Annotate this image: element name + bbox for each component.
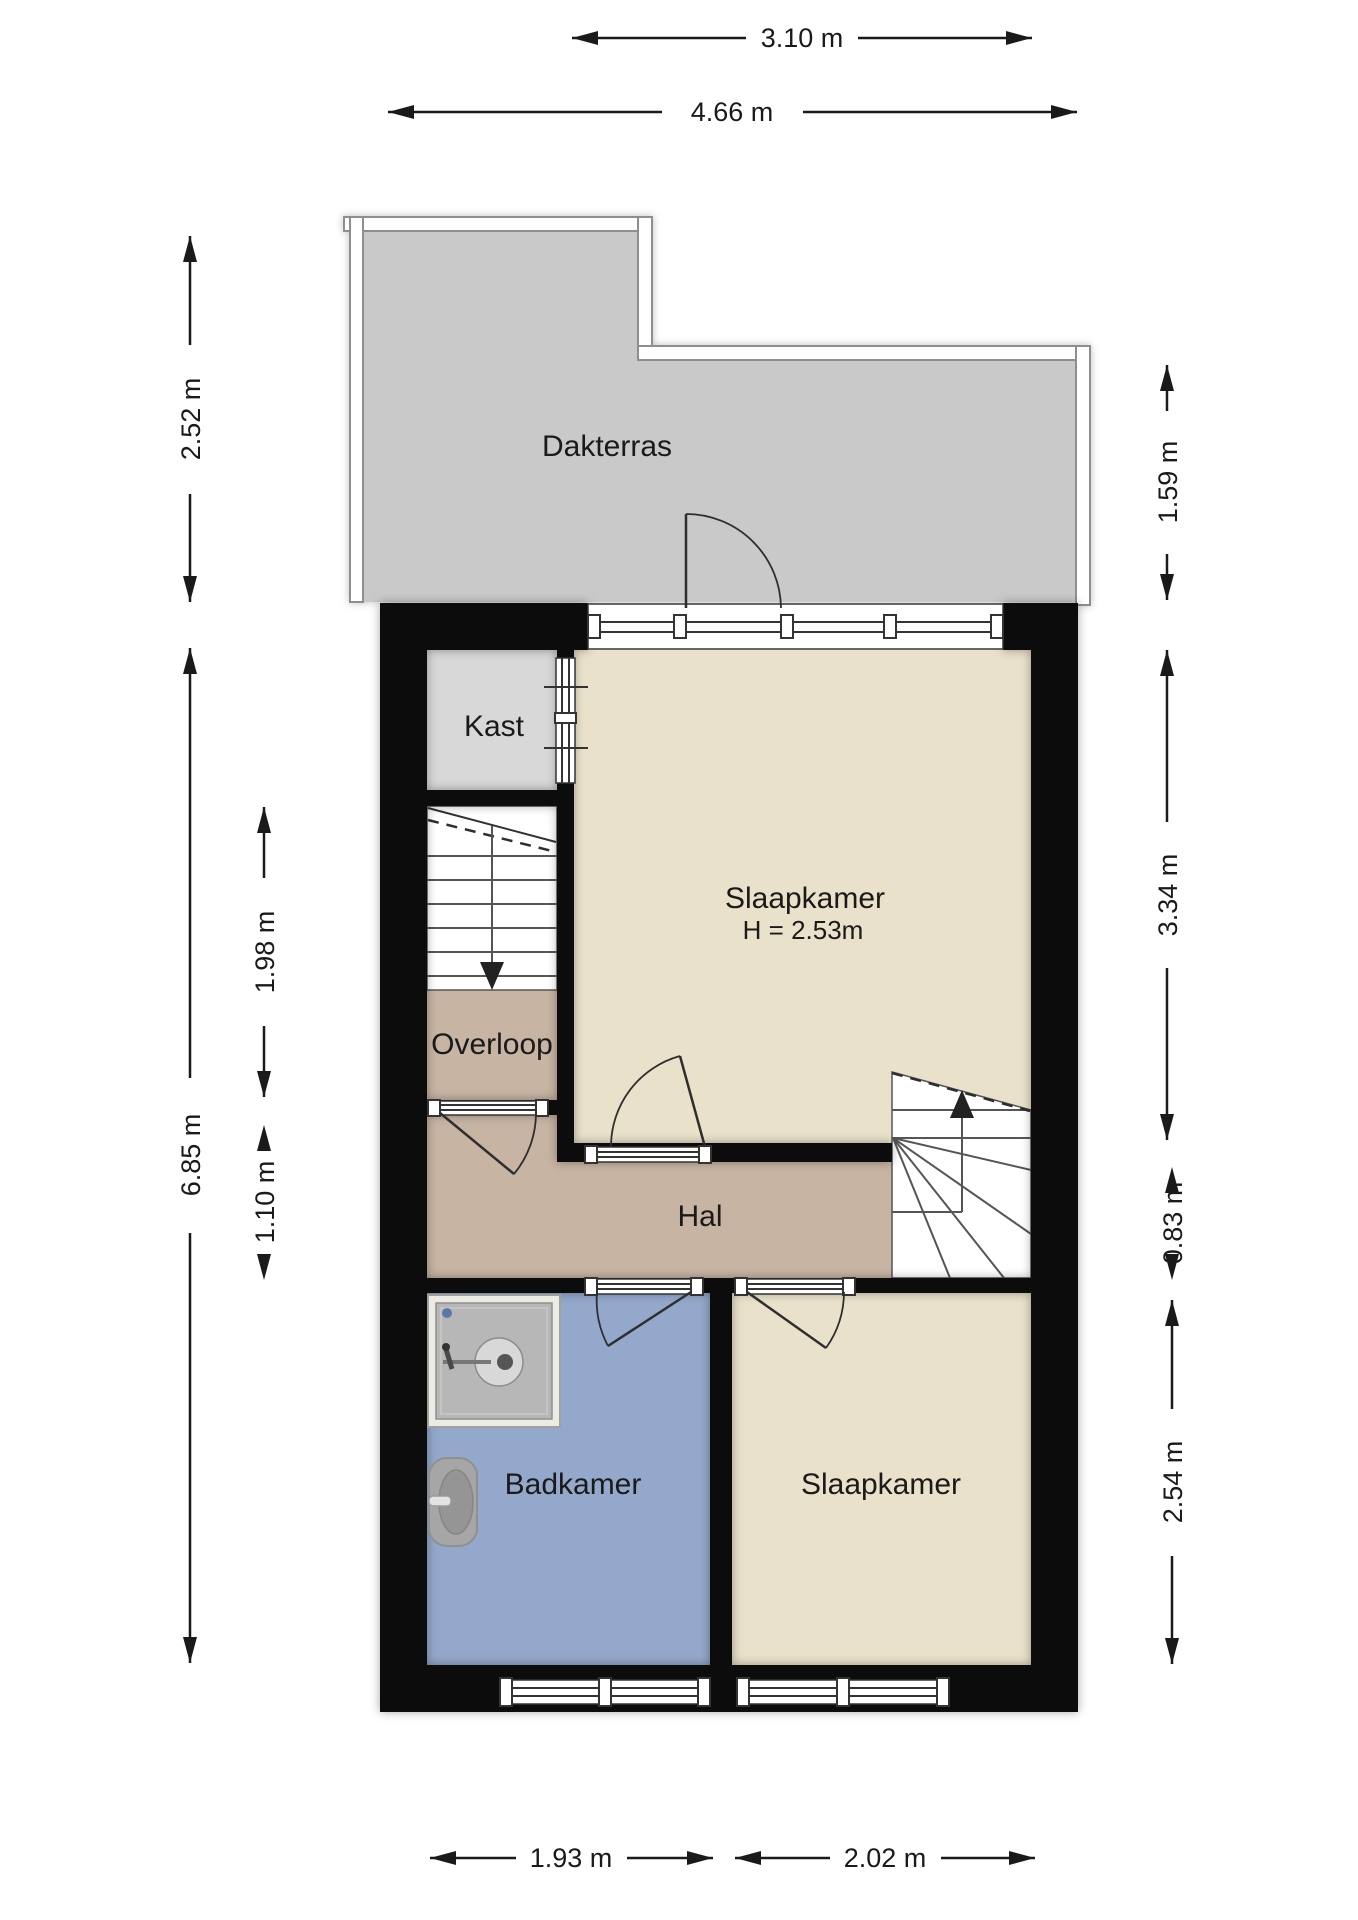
window-top-band [588,604,1003,649]
room-label-slaapkamer-1: Slaapkamer [725,882,885,915]
room-label-badkamer: Badkamer [505,1468,642,1501]
dim-label-159: 1.59 m [1153,441,1183,524]
wall-top-left [380,603,588,650]
window-badkamer [500,1678,710,1706]
shower-icon [428,1295,560,1427]
room-label-kast: Kast [464,710,525,743]
room-label-hal: Hal [677,1200,722,1233]
wall-right-outer [1031,603,1078,1712]
terrace-wall-left [350,217,363,602]
dim-label-254: 2.54 m [1158,1441,1188,1524]
terrace-wall-right [1076,346,1090,605]
room-label-slaapkamer-2: Slaapkamer [801,1468,961,1501]
dakterras-floor [363,231,1076,602]
dim-label-083: 0.83 m [1158,1182,1188,1265]
toilet-icon [429,1458,477,1546]
window-slaapkamer-2 [737,1678,949,1706]
room-dakterras [344,217,1090,605]
dim-label-334: 3.34 m [1153,854,1183,937]
wall-top-right [1003,603,1078,650]
floorplan-canvas: Dakterras Kast Slaapkamer H = 2.53m Over… [0,0,1358,1920]
wall-left-outer [380,603,427,1712]
room-sublabel-slaapkamer-1: H = 2.53m [743,915,864,945]
dim-label-685: 6.85 m [176,1114,206,1197]
wall-badkamer-east [710,1293,732,1665]
dim-label-202: 2.02 m [844,1843,927,1873]
dim-label-252: 2.52 m [176,378,206,461]
wall-hal-south [427,1278,1032,1293]
dim-label-466: 4.66 m [691,97,774,127]
wall-kast-south [427,790,557,806]
terrace-wall-top-left [344,217,652,231]
wall-bottom-outer [380,1665,1078,1712]
dim-label-193: 1.93 m [530,1843,613,1873]
dim-label-198: 1.98 m [250,911,280,994]
room-label-overloop: Overloop [431,1028,553,1061]
terrace-wall-notch [638,217,652,360]
room-label-dakterras: Dakterras [542,430,672,463]
dim-label-310: 3.10 m [761,23,844,53]
staircase-down [427,806,557,990]
dim-label-110: 1.10 m [250,1161,280,1244]
terrace-wall-top-right [638,346,1090,360]
